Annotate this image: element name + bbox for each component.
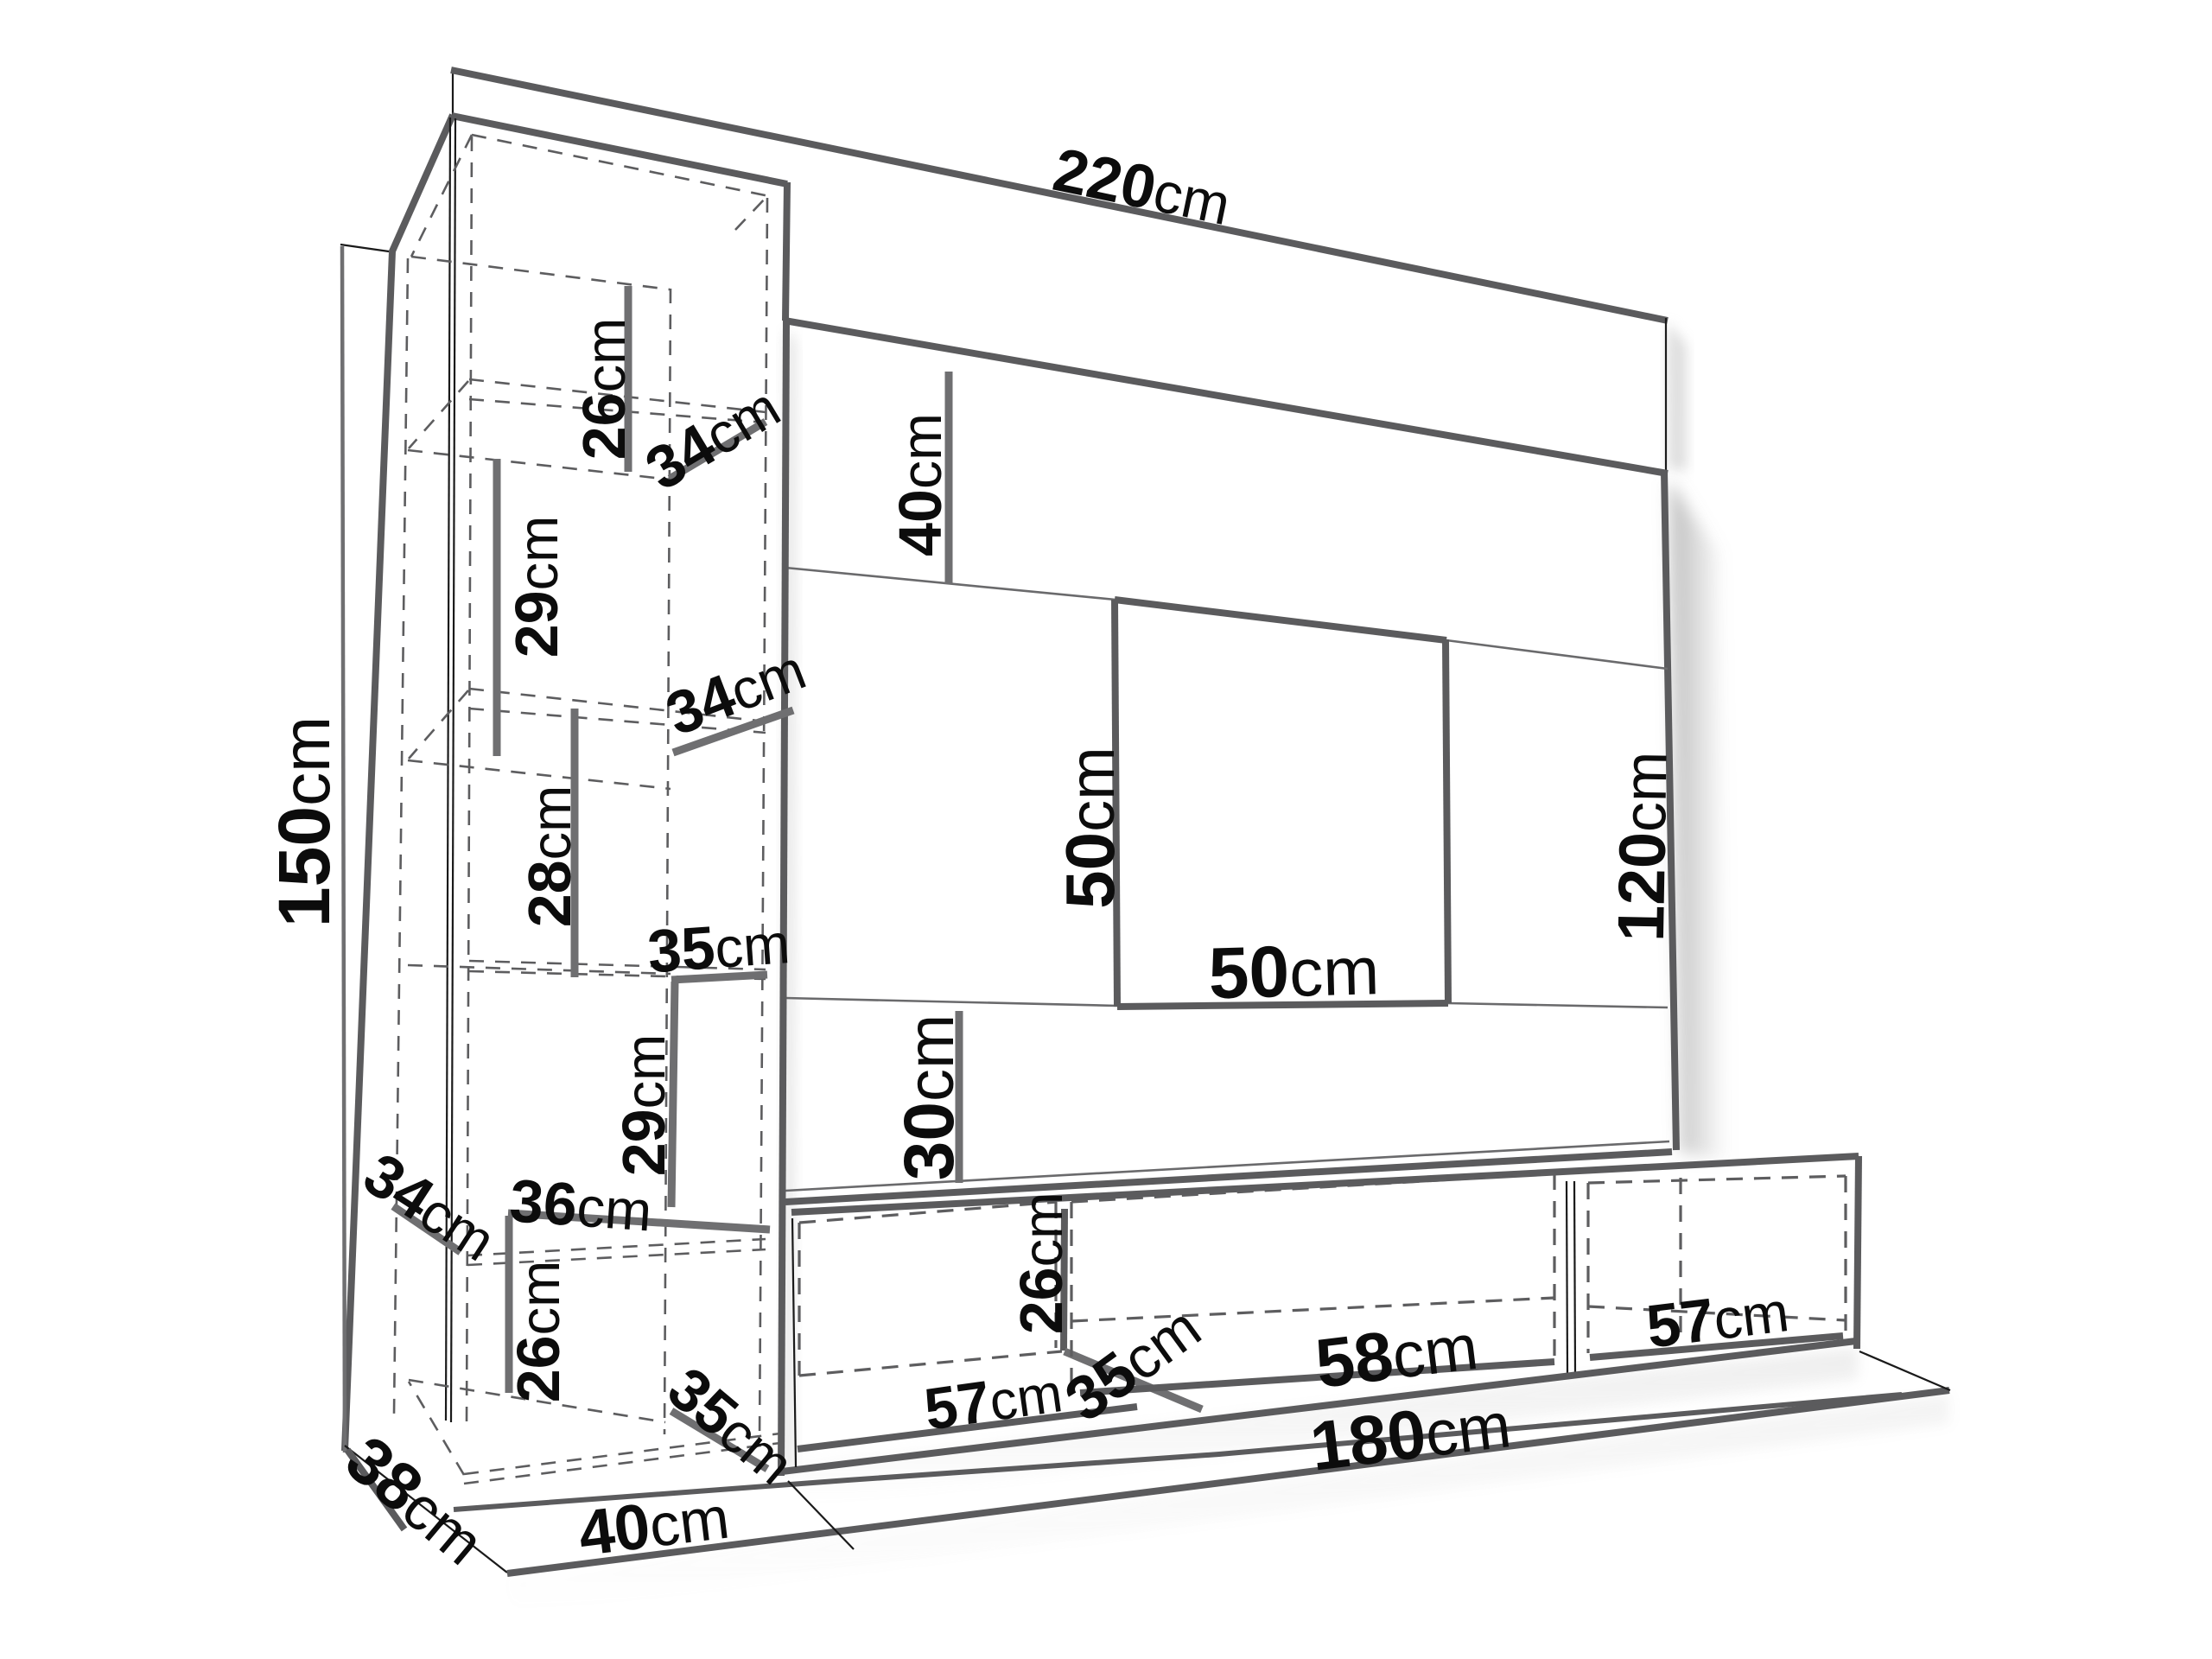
svg-text:26cm: 26cm (1007, 1192, 1075, 1335)
svg-text:30cm: 30cm (890, 1014, 969, 1181)
svg-text:150cm: 150cm (264, 716, 345, 927)
svg-text:35cm: 35cm (645, 908, 792, 985)
svg-text:28cm: 28cm (516, 785, 583, 928)
svg-text:26cm: 26cm (570, 318, 638, 461)
svg-text:50cm: 50cm (1052, 747, 1128, 909)
svg-text:29cm: 29cm (503, 516, 570, 658)
svg-text:40cm: 40cm (887, 413, 954, 556)
svg-text:29cm: 29cm (610, 1034, 677, 1177)
svg-text:120cm: 120cm (1605, 751, 1681, 943)
svg-text:50cm: 50cm (1207, 928, 1380, 1014)
svg-text:36cm: 36cm (507, 1166, 654, 1243)
svg-text:26cm: 26cm (505, 1261, 572, 1403)
